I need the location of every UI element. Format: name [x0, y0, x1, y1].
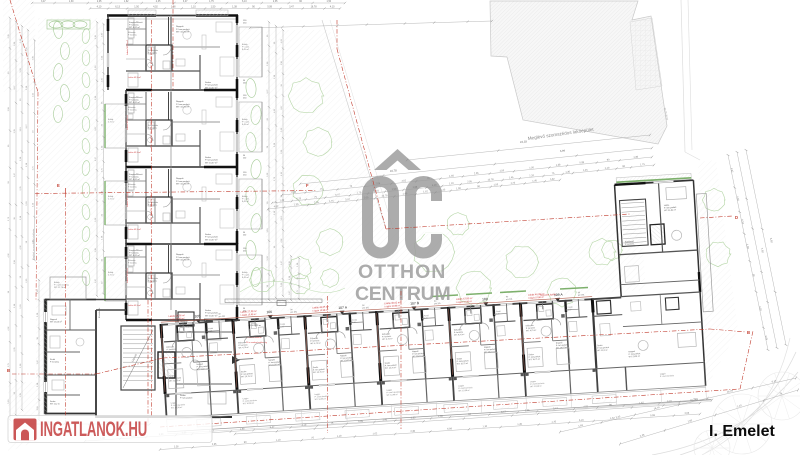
svg-text:WT: 13,37 m²: WT: 13,37 m² — [205, 238, 218, 241]
svg-text:5,99: 5,99 — [267, 6, 272, 9]
svg-text:24,18: 24,18 — [520, 139, 528, 144]
svg-text:P: kerámia: P: kerámia — [148, 280, 158, 283]
svg-text:2,05: 2,05 — [684, 412, 690, 415]
svg-text:2,71 m²: 2,71 m² — [108, 198, 115, 201]
svg-text:P: lam.parkett: P: lam.parkett — [176, 256, 190, 259]
svg-text:2,40: 2,40 — [424, 318, 428, 320]
svg-text:8,45 m²: 8,45 m² — [242, 200, 249, 203]
svg-text:pm 191: pm 191 — [506, 299, 512, 301]
svg-text:107 B: 107 B — [410, 301, 420, 306]
svg-text:106: 106 — [266, 310, 272, 314]
svg-text:1,10: 1,10 — [191, 6, 196, 9]
svg-text:P: lam.parkett: P: lam.parkett — [176, 103, 190, 106]
svg-text:Szoba: Szoba — [205, 82, 212, 84]
svg-text:2,05: 2,05 — [97, 0, 102, 3]
svg-text:2,40: 2,40 — [568, 309, 572, 311]
svg-text:Lakás 56,05 m²: Lakás 56,05 m² — [126, 192, 129, 207]
svg-text:P: kerámia: P: kerámia — [128, 262, 137, 264]
svg-text:4,02: 4,02 — [153, 6, 158, 9]
svg-text:3,47: 3,47 — [41, 0, 46, 3]
svg-text:WT: 15,03 m²: WT: 15,03 m² — [50, 321, 62, 324]
svg-text:Nappali: Nappali — [176, 254, 184, 256]
svg-text:Szoba: Szoba — [205, 310, 212, 312]
svg-text:WT: 16,31 m²: WT: 16,31 m² — [176, 183, 189, 186]
svg-text:WT: 13,37 m²: WT: 13,37 m² — [205, 314, 218, 317]
svg-text:Szoba: Szoba — [205, 157, 212, 159]
svg-text:WT: 8,42 m²: WT: 8,42 m² — [129, 101, 140, 104]
svg-text:1,50: 1,50 — [211, 6, 216, 9]
svg-text:250: 250 — [243, 83, 246, 85]
svg-text:B: B — [7, 368, 10, 373]
svg-text:OTTHON: OTTHON — [358, 261, 446, 283]
svg-text:pm 191: pm 191 — [578, 294, 584, 296]
svg-text:2,35: 2,35 — [156, 0, 161, 3]
svg-text:Lakás 45,3 m²: Lakás 45,3 m² — [128, 151, 141, 154]
svg-text:5,99: 5,99 — [447, 427, 453, 430]
svg-text:Nappali: Nappali — [176, 178, 184, 180]
svg-text:WT: 13,37 m²: WT: 13,37 m² — [205, 161, 218, 164]
svg-text:1,75: 1,75 — [551, 420, 557, 423]
svg-text:2,35: 2,35 — [273, 0, 278, 3]
svg-text:P: lam.parkett: P: lam.parkett — [176, 28, 190, 31]
svg-text:P: kerámia: P: kerámia — [128, 34, 137, 36]
svg-text:Lakás 56,05 m²: Lakás 56,05 m² — [126, 115, 129, 130]
svg-text:1,50: 1,50 — [134, 6, 139, 9]
svg-text:P: lam.parkett: P: lam.parkett — [205, 159, 218, 162]
svg-text:Nappali: Nappali — [176, 26, 184, 28]
svg-text:16,78: 16,78 — [487, 178, 494, 182]
svg-text:8,45 m²: 8,45 m² — [242, 48, 249, 51]
svg-text:Közlekedő: Közlekedő — [99, 307, 101, 318]
svg-text:105: 105 — [194, 314, 200, 318]
svg-text:5,99: 5,99 — [358, 420, 364, 423]
svg-text:P: lam.parkett: P: lam.parkett — [205, 312, 218, 315]
svg-text:Konyha/Étkező: Konyha/Étkező — [129, 249, 143, 252]
svg-text:1,62: 1,62 — [124, 0, 129, 3]
svg-text:B: B — [747, 330, 750, 335]
svg-text:INGATLANOK.HU: INGATLANOK.HU — [40, 417, 147, 441]
svg-text:3,47: 3,47 — [183, 0, 188, 3]
svg-text:Lakás 56,05 m²: Lakás 56,05 m² — [126, 268, 129, 283]
svg-text:1,50: 1,50 — [326, 0, 331, 3]
svg-text:107 A: 107 A — [338, 305, 348, 310]
svg-text:2,40: 2,40 — [208, 330, 212, 332]
svg-text:WT: 8,42 m²: WT: 8,42 m² — [129, 178, 140, 181]
svg-text:6,13: 6,13 — [242, 0, 247, 3]
svg-text:E: E — [57, 183, 60, 188]
svg-text:pm 191: pm 191 — [219, 316, 225, 318]
svg-text:1,10: 1,10 — [482, 425, 488, 428]
svg-text:Nappali: Nappali — [176, 101, 184, 103]
svg-text:8,45 m²: 8,45 m² — [242, 123, 249, 126]
svg-text:Konyha/Étkező: Konyha/Étkező — [129, 96, 143, 99]
svg-text:2,05: 2,05 — [525, 409, 531, 412]
svg-text:3,47: 3,47 — [289, 6, 294, 9]
svg-text:250: 250 — [243, 158, 246, 160]
svg-text:Lakás 45,3 m²: Lakás 45,3 m² — [128, 76, 141, 79]
svg-text:P: kerámia: P: kerámia — [50, 361, 60, 364]
svg-text:Meglévő szomszédos telekhatár: Meglévő szomszédos telekhatár — [32, 228, 35, 260]
svg-text:P: kerámia: P: kerámia — [148, 127, 158, 130]
svg-text:16,78: 16,78 — [390, 168, 398, 173]
svg-text:WT: 12,76 m²: WT: 12,76 m² — [54, 286, 66, 289]
svg-text:Lakás 45,3 m²: Lakás 45,3 m² — [128, 228, 141, 231]
svg-text:108: 108 — [482, 297, 488, 301]
svg-text:pm 191: pm 191 — [362, 307, 368, 309]
svg-text:2,40: 2,40 — [352, 322, 356, 324]
svg-text:1,10: 1,10 — [276, 439, 282, 442]
svg-text:2,35: 2,35 — [174, 445, 180, 448]
svg-text:2,40: 2,40 — [280, 326, 284, 328]
svg-text:1,38: 1,38 — [232, 6, 237, 9]
svg-text:1,45: 1,45 — [382, 418, 388, 421]
svg-text:2,35: 2,35 — [411, 416, 417, 419]
svg-text:WT: 8,42 m²: WT: 8,42 m² — [129, 254, 140, 257]
svg-text:Lakás 45,3 m²: Lakás 45,3 m² — [128, 304, 141, 307]
svg-text:P: kerámia: P: kerámia — [128, 186, 137, 188]
svg-text:6,13: 6,13 — [579, 419, 585, 422]
svg-text:16,78: 16,78 — [311, 6, 318, 9]
svg-text:4,10: 4,10 — [330, 6, 335, 9]
svg-text:WT: 13,37 m²: WT: 13,37 m² — [205, 86, 218, 89]
svg-text:2,35: 2,35 — [410, 430, 416, 433]
svg-text:Konyha/Étkező: Konyha/Étkező — [129, 173, 143, 176]
svg-text:P: kerámia: P: kerámia — [148, 52, 158, 55]
svg-text:Lakás 56,05 m²: Lakás 56,05 m² — [126, 40, 129, 55]
svg-text:4,10: 4,10 — [97, 6, 102, 9]
svg-text:5,99: 5,99 — [560, 148, 566, 153]
svg-text:5,99: 5,99 — [650, 414, 656, 417]
svg-text:WT: 16,31 m²: WT: 16,31 m² — [176, 31, 189, 34]
svg-text:4,10: 4,10 — [667, 400, 673, 403]
svg-text:P: lam.parkett: P: lam.parkett — [205, 84, 218, 87]
svg-text:pm 191: pm 191 — [291, 311, 297, 313]
svg-text:pm 191: pm 191 — [434, 303, 440, 305]
svg-text:250: 250 — [243, 235, 246, 237]
svg-text:6,13: 6,13 — [115, 6, 120, 9]
svg-text:F: F — [306, 183, 309, 188]
svg-text:3,47: 3,47 — [270, 426, 276, 429]
svg-text:P: kerámia: P: kerámia — [128, 109, 137, 111]
svg-text:2,40: 2,40 — [496, 313, 500, 315]
svg-text:WT: 8,42 m²: WT: 8,42 m² — [129, 26, 140, 29]
svg-text:1,75: 1,75 — [209, 0, 214, 3]
svg-text:Szoba: Szoba — [205, 234, 212, 236]
svg-text:Konyha/Étkező: Konyha/Étkező — [129, 21, 143, 24]
svg-text:P: lam.parkett: P: lam.parkett — [205, 236, 218, 239]
svg-text:1,30: 1,30 — [69, 0, 74, 3]
svg-text:WT: 16,31 m²: WT: 16,31 m² — [176, 259, 189, 262]
svg-text:8,45 m²: 8,45 m² — [242, 276, 249, 279]
svg-text:WT: 11,2 m²: WT: 11,2 m² — [50, 403, 60, 406]
svg-text:I. Emelet: I. Emelet — [709, 423, 775, 440]
svg-text:2,71 m²: 2,71 m² — [108, 121, 115, 124]
svg-text:2,71 m²: 2,71 m² — [108, 274, 115, 277]
svg-text:P: kerámia: P: kerámia — [148, 204, 158, 207]
svg-text:P: lam.parkett: P: lam.parkett — [180, 397, 193, 400]
svg-text:D: D — [735, 215, 738, 220]
svg-text:P: lam.parkett: P: lam.parkett — [176, 180, 190, 183]
svg-text:P: kerámia: P: kerámia — [625, 242, 635, 246]
svg-text:WT: 16,31 m²: WT: 16,31 m² — [176, 106, 189, 109]
svg-text:1,38: 1,38 — [171, 6, 176, 9]
